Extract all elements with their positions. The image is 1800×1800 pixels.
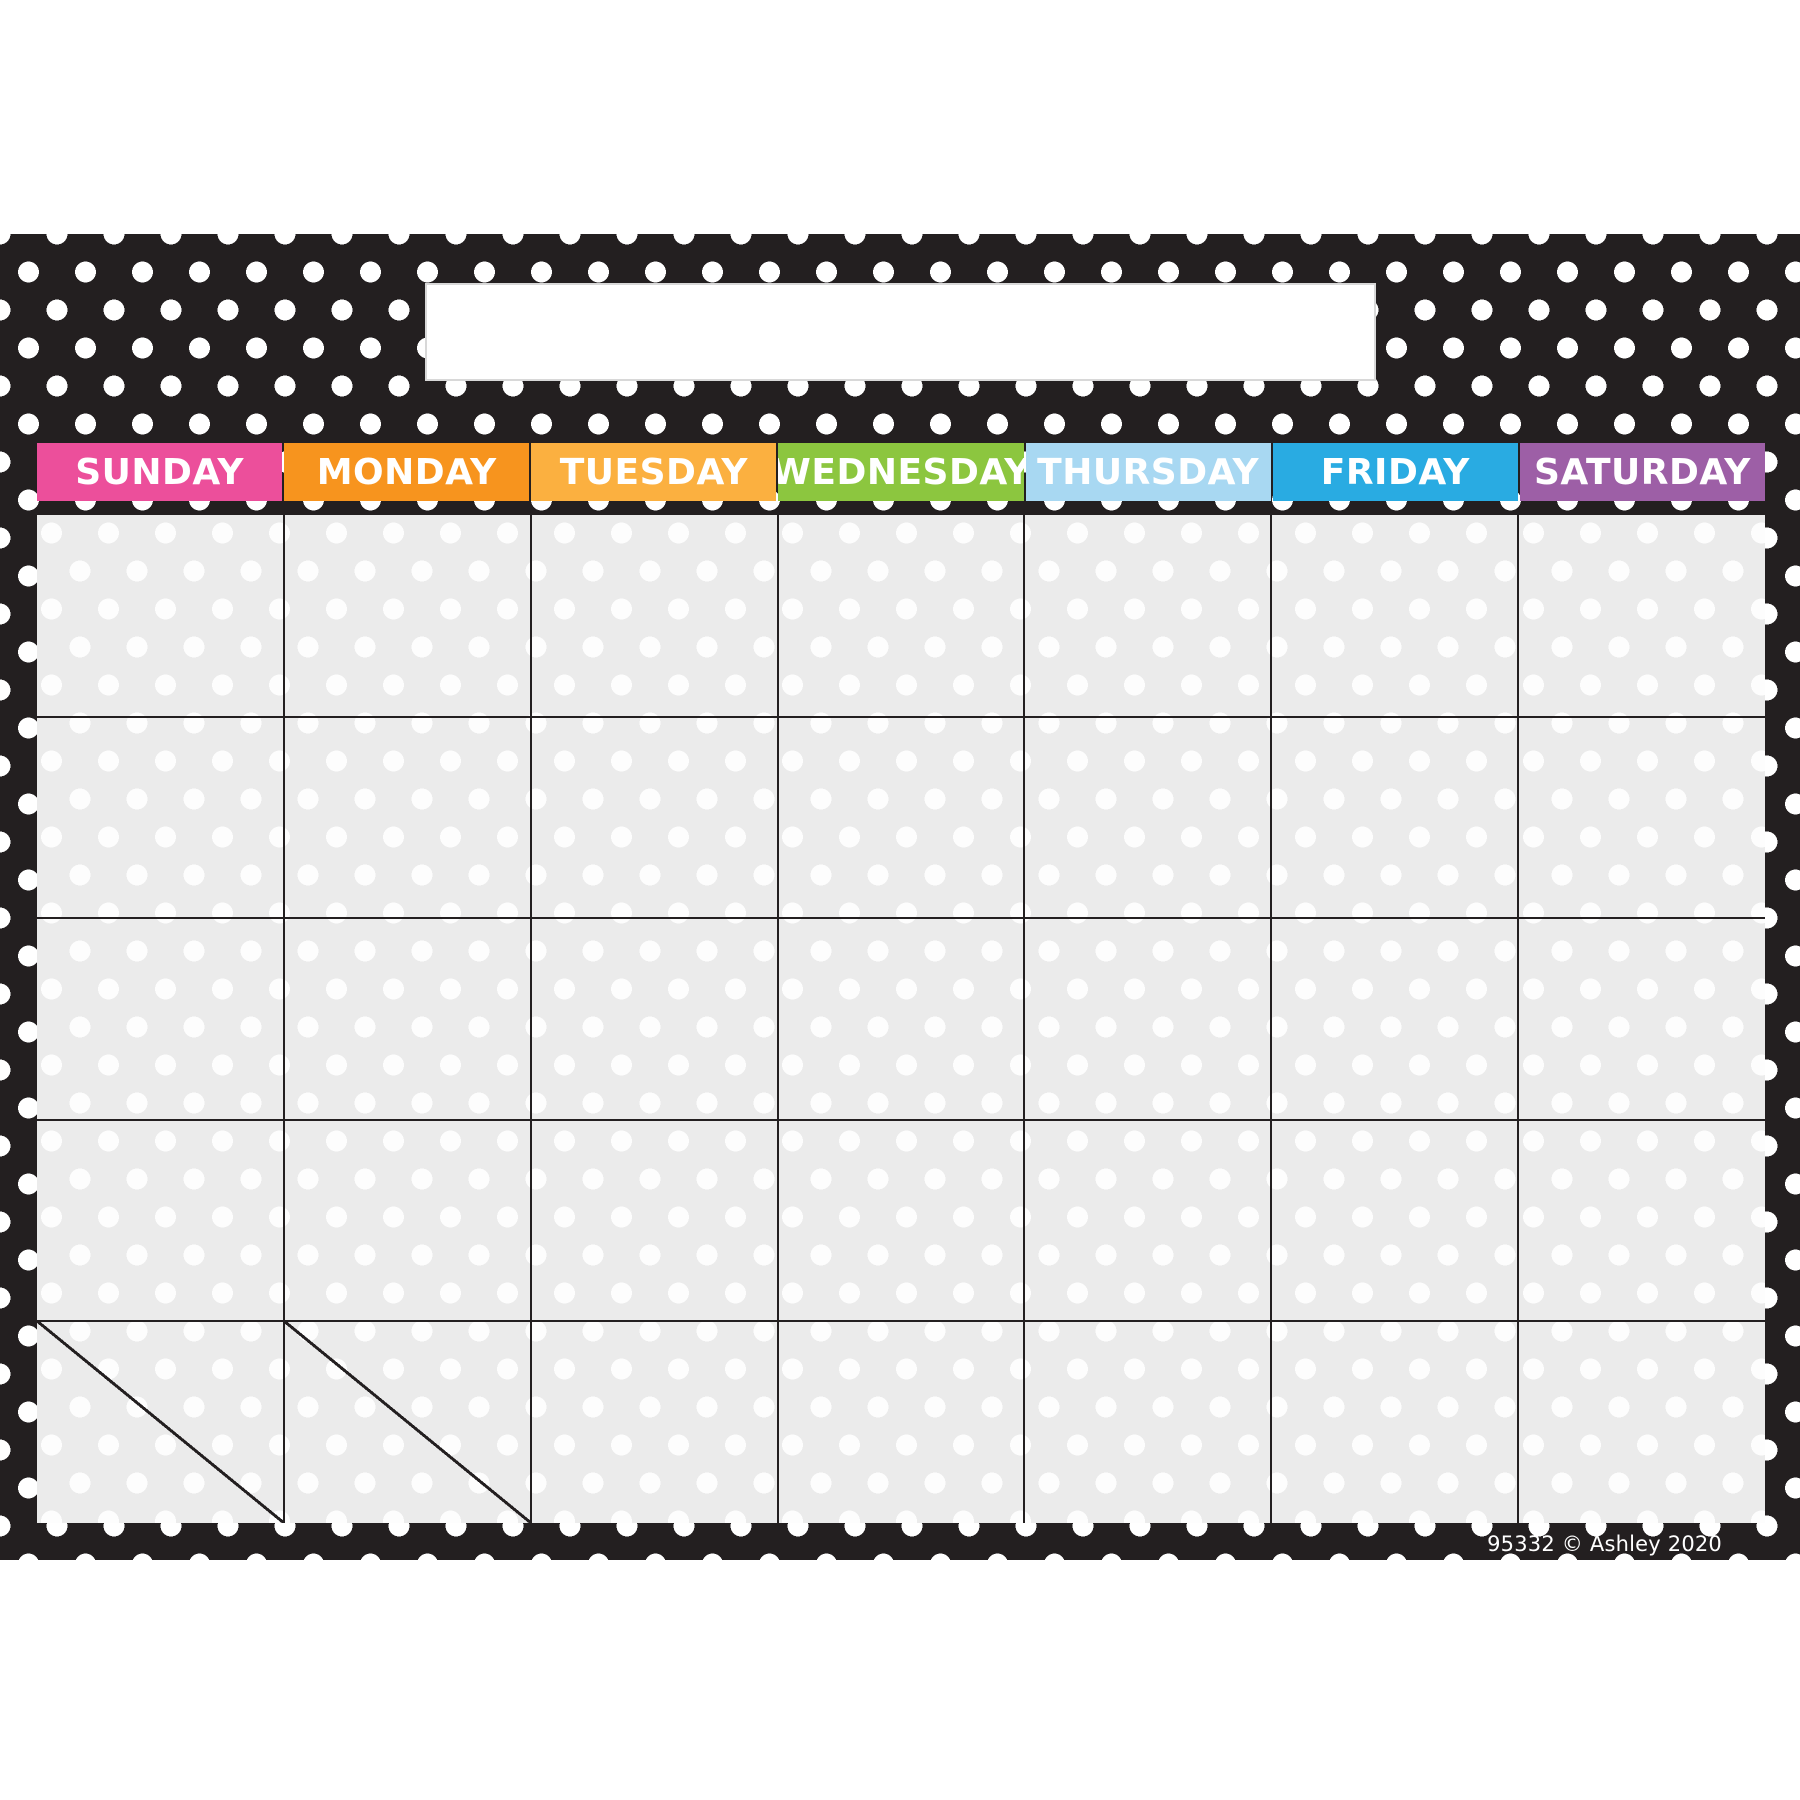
calendar-cell-r2c3	[531, 717, 778, 919]
day-header-sunday: SUNDAY	[37, 443, 282, 501]
calendar-cell-r5c5	[1024, 1321, 1271, 1523]
calendar-cell-r4c2	[284, 1120, 531, 1322]
day-header-monday: MONDAY	[284, 443, 529, 501]
grid-row-divider	[37, 917, 1765, 919]
calendar-cell-r1c5	[1024, 515, 1271, 717]
grid-column-divider	[530, 515, 532, 1523]
grid-row-divider	[37, 716, 1765, 718]
calendar-cell-r1c3	[531, 515, 778, 717]
calendar-cell-r4c6	[1271, 1120, 1518, 1322]
calendar-cell-r4c4	[778, 1120, 1025, 1322]
calendar-cell-r3c6	[1271, 918, 1518, 1120]
copyright-text: 95332 © Ashley 2020	[1487, 1532, 1722, 1556]
calendar-cell-r2c1	[37, 717, 284, 919]
grid-row-divider	[37, 1320, 1765, 1322]
calendar-cell-r1c2	[284, 515, 531, 717]
day-header-wednesday: WEDNESDAY	[778, 443, 1023, 501]
grid-column-divider	[1270, 515, 1272, 1523]
grid-column-divider	[777, 515, 779, 1523]
calendar-cell-r2c4	[778, 717, 1025, 919]
calendar-cell-r1c4	[778, 515, 1025, 717]
day-header-tuesday: TUESDAY	[531, 443, 776, 501]
calendar-cell-r4c3	[531, 1120, 778, 1322]
calendar-cell-r5c2	[284, 1321, 531, 1523]
calendar-cell-r1c1	[37, 515, 284, 717]
calendar-cell-r5c3	[531, 1321, 778, 1523]
grid-column-divider	[1517, 515, 1519, 1523]
calendar-cell-r3c3	[531, 918, 778, 1120]
calendar-cell-r5c7	[1518, 1321, 1765, 1523]
calendar-cell-r2c7	[1518, 717, 1765, 919]
grid-row-divider	[37, 1119, 1765, 1121]
calendar-cell-r3c2	[284, 918, 531, 1120]
calendar-cell-r2c2	[284, 717, 531, 919]
calendar-cell-r1c6	[1271, 515, 1518, 717]
calendar-cells	[37, 515, 1765, 1523]
calendar-cell-r2c5	[1024, 717, 1271, 919]
day-header-friday: FRIDAY	[1273, 443, 1518, 501]
calendar-chart-poster: SUNDAYMONDAYTUESDAYWEDNESDAYTHURSDAYFRID…	[0, 234, 1800, 1560]
calendar-grid	[37, 515, 1765, 1523]
calendar-cell-r5c4	[778, 1321, 1025, 1523]
grid-column-divider	[283, 515, 285, 1523]
calendar-cell-r5c1	[37, 1321, 284, 1523]
calendar-cell-r4c5	[1024, 1120, 1271, 1322]
calendar-cell-r5c6	[1271, 1321, 1518, 1523]
calendar-cell-r1c7	[1518, 515, 1765, 717]
weekday-header-row: SUNDAYMONDAYTUESDAYWEDNESDAYTHURSDAYFRID…	[37, 443, 1765, 501]
calendar-cell-r2c6	[1271, 717, 1518, 919]
calendar-cell-r3c5	[1024, 918, 1271, 1120]
month-title-box	[425, 283, 1376, 381]
calendar-cell-r3c4	[778, 918, 1025, 1120]
product-image: SUNDAYMONDAYTUESDAYWEDNESDAYTHURSDAYFRID…	[0, 0, 1800, 1800]
day-header-saturday: SATURDAY	[1520, 443, 1765, 501]
calendar-cell-r4c1	[37, 1120, 284, 1322]
grid-column-divider	[1023, 515, 1025, 1523]
day-header-thursday: THURSDAY	[1026, 443, 1271, 501]
calendar-cell-r4c7	[1518, 1120, 1765, 1322]
calendar-cell-r3c1	[37, 918, 284, 1120]
calendar-cell-r3c7	[1518, 918, 1765, 1120]
